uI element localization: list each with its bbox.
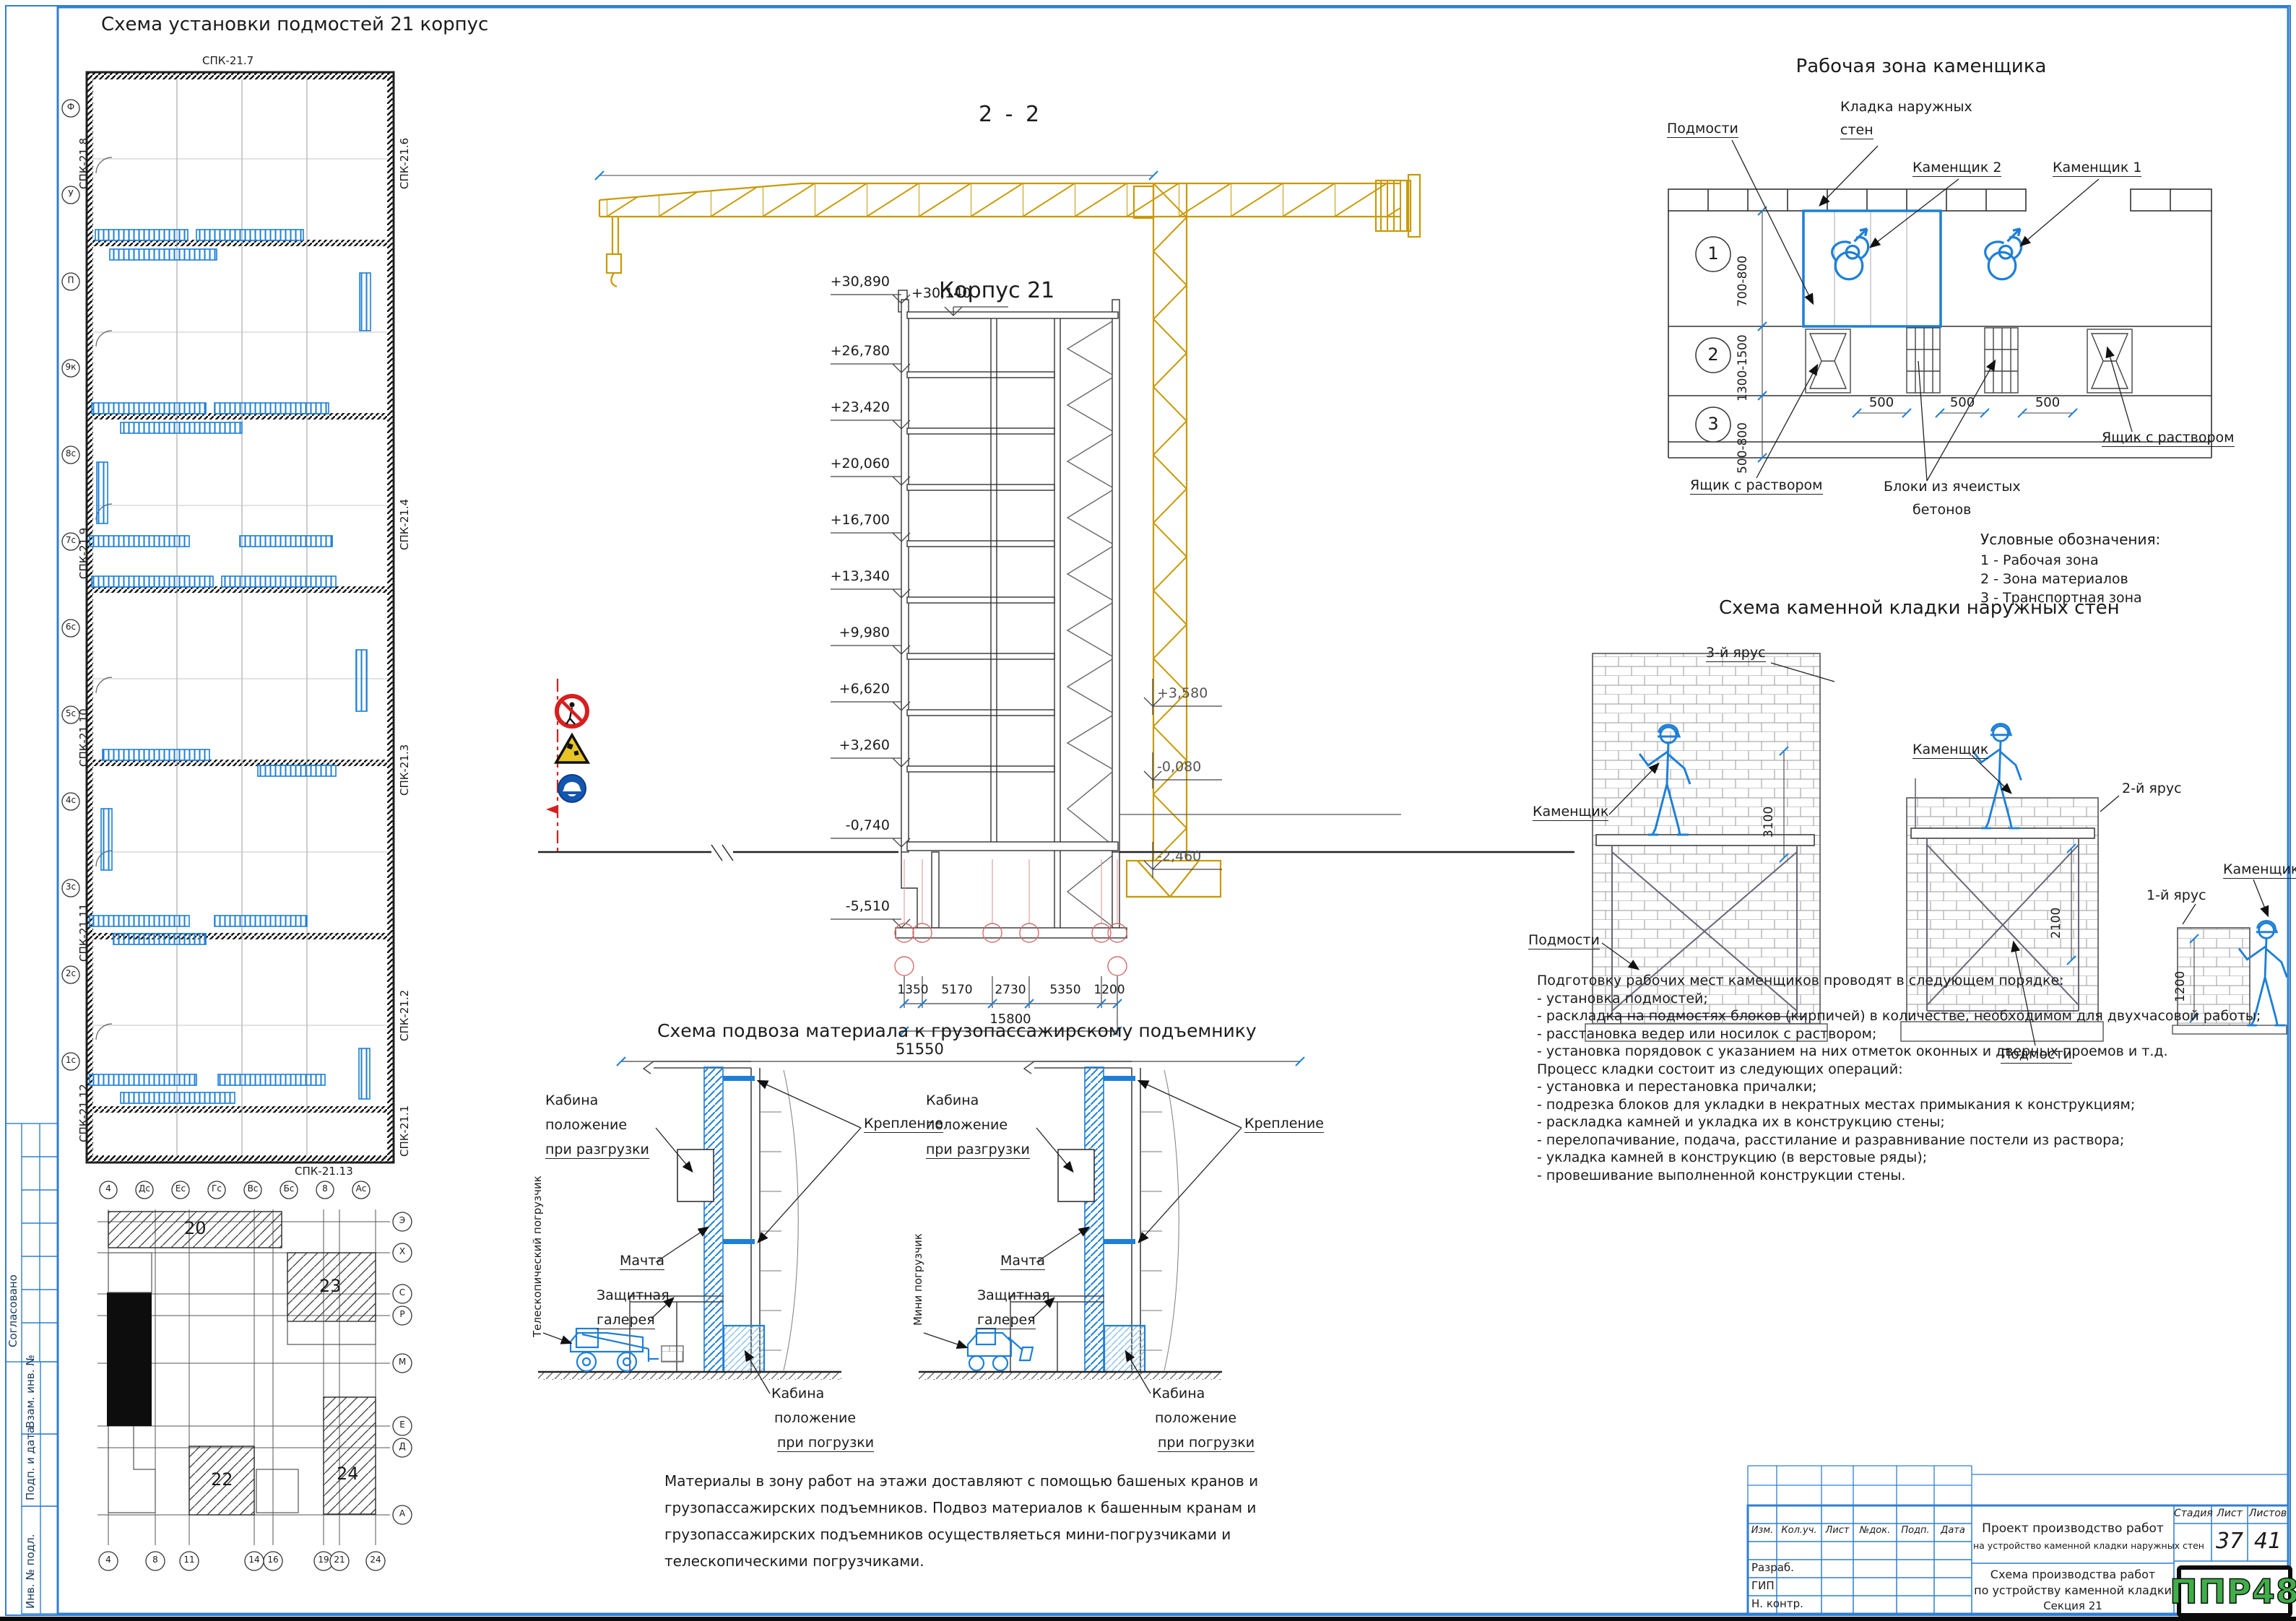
dimension: 500 — [2029, 396, 2066, 410]
elevation-label: +23,420 — [767, 400, 890, 415]
label-podmosti: Подмости — [1667, 121, 1738, 138]
legend-title: Условные обозначения: — [1980, 531, 2160, 547]
label-mortar-box: Ящик с раствором — [1690, 478, 1823, 495]
elevation-label: +3,260 — [767, 738, 890, 753]
axis-bubble: 8с — [62, 449, 79, 459]
axis-bubble: 4 — [100, 1184, 117, 1194]
key-plan-area: 23 — [319, 1277, 342, 1295]
hoist-title: Схема подвоза материала к грузопассажирс… — [657, 1021, 1148, 1041]
ground-lines — [538, 814, 1574, 861]
label-cab: при погрузки — [777, 1435, 874, 1452]
dimension: 5170 — [935, 983, 979, 997]
elevation-label: +6,620 — [767, 682, 890, 697]
axis-bubble: 9к — [62, 362, 79, 372]
dimension: 500 — [1863, 396, 1899, 410]
stamp-header: Дата — [1934, 1526, 1972, 1536]
label-cab: положение — [926, 1118, 1008, 1133]
floor-plan-label-left: СПК-21.10 — [78, 708, 90, 767]
label-loader: Мини погрузчик — [912, 1233, 924, 1326]
axis-bubble: Э — [394, 1216, 411, 1225]
key-plan-area: 20 — [184, 1219, 207, 1238]
axis-bubble: 7с — [62, 536, 79, 545]
label-cab: Кабина — [1152, 1386, 1205, 1401]
procedure-line: - раскладка на подмостях блоков (кирпиче… — [1537, 1009, 2261, 1024]
elevation-label: +13,340 — [767, 569, 890, 584]
stamp-stage-header: Листов — [2248, 1508, 2288, 1519]
label-blocks: Блоки из ячеистых — [1884, 479, 2021, 495]
elevation-label: +20,060 — [767, 456, 890, 471]
axis-bubble: 4с — [62, 796, 79, 805]
axis-bubble: 3с — [62, 882, 79, 892]
label-cab: при погрузки — [1158, 1435, 1255, 1452]
stamp-role: Разраб. — [1751, 1562, 1794, 1574]
axis-bubble: Ф — [62, 103, 79, 112]
stamp-role: ГИП — [1751, 1580, 1775, 1592]
tier-label: 3-й ярус — [1706, 646, 1766, 662]
skid-steer-icon — [968, 1329, 1033, 1370]
margin-label: Взам. инв. № — [25, 1355, 37, 1428]
stamp-role: Н. контр. — [1751, 1598, 1803, 1610]
elevation-label: +16,700 — [767, 513, 890, 528]
label-blocks: бетонов — [1912, 503, 1971, 518]
dimension: 500 — [1944, 396, 1980, 410]
label-mason: Каменщик — [1533, 804, 1608, 821]
dimension-total: 51550 — [896, 1041, 944, 1058]
margin-label: Согласовано — [7, 1274, 20, 1347]
floor-plan-label-right: СПК-21.6 — [399, 138, 411, 189]
floor-plan-label-left: СПК-21.11 — [78, 903, 90, 962]
label-podmosti: Подмости — [1528, 933, 1600, 949]
crane-elevation-label: -0,080 — [1157, 760, 1201, 775]
dimension: 2730 — [989, 983, 1032, 997]
axis-bubble: А — [394, 1509, 411, 1518]
zone-dim: 700-800 — [1736, 256, 1750, 307]
dimension: 1200 — [2174, 971, 2188, 1002]
label-machta: Мачта — [620, 1253, 664, 1270]
axis-bubble: Е — [394, 1420, 411, 1430]
elevation-label: -5,510 — [767, 899, 890, 914]
label-kladka: стен — [1840, 123, 1873, 139]
label-cab: Кабина — [771, 1386, 824, 1401]
zone-dim: 500-800 — [1736, 422, 1750, 474]
crane-elevation-label: +3,580 — [1157, 686, 1208, 701]
no-pedestrian-sign — [557, 696, 587, 726]
scaffold-strips — [90, 230, 371, 1103]
drawing-graphics — [0, 0, 2296, 1621]
stamp-sheet-number: 37 — [2211, 1529, 2248, 1553]
procedure-line: - установка подмостей; — [1537, 991, 1708, 1007]
stamp-doc-name: Схема производства работ — [1973, 1568, 2172, 1581]
label-cab: при разгрузки — [926, 1142, 1030, 1159]
procedure-line: - укладка камней в конструкцию (в версто… — [1537, 1150, 1927, 1165]
axis-bubble: 24 — [367, 1555, 384, 1565]
drawing-sheet: Схема установки подмостей 21 корпус СПК-… — [0, 0, 2296, 1621]
label-cab: положение — [1155, 1411, 1236, 1426]
label-gallery: галерея — [977, 1313, 1036, 1329]
elevation-label: -0,740 — [767, 818, 890, 833]
axis-bubble: Ес — [172, 1184, 189, 1194]
axis-bubble: 21 — [331, 1555, 348, 1565]
crane-elevation-label: -2,460 — [1157, 849, 1201, 864]
dimension: 1350 — [891, 983, 935, 997]
label-kreplenie: Крепление — [1244, 1116, 1324, 1133]
procedure-line: - провешивание выполненной конструкции с… — [1537, 1168, 1905, 1183]
stamp-sheets-total: 41 — [2248, 1529, 2288, 1553]
dimension: 1200 — [1088, 983, 1131, 997]
margin-label: Инв. № подл. — [25, 1534, 37, 1609]
procedure-line: - перелопачивание, подача, расстилание и… — [1537, 1133, 2124, 1148]
label-mason1: Каменщик 1 — [2053, 160, 2141, 177]
axis-bubble: Д — [394, 1442, 411, 1451]
dimension: 3100 — [1762, 807, 1776, 838]
section-cut-line — [595, 171, 1158, 180]
legend-item: 2 - Зона материалов — [1980, 572, 2128, 587]
dimension: 5350 — [1044, 983, 1087, 997]
axis-bubble: М — [394, 1357, 411, 1367]
floor-plan-axis-bubbles — [62, 100, 370, 1199]
label-cab: положение — [545, 1118, 627, 1133]
axis-bubble: Вс — [244, 1184, 261, 1194]
label-gallery: галерея — [597, 1313, 655, 1329]
stamp-doc-name: по устройству каменной кладки — [1973, 1584, 2172, 1597]
axis-bubble: 8 — [147, 1555, 164, 1565]
section-title: 2 - 2 — [979, 103, 1042, 126]
zone-number: 1 — [1696, 244, 1730, 263]
materials-note-line: Материалы в зону работ на этажи доставля… — [664, 1473, 1258, 1489]
procedure-line: Подготовку рабочих мест каменщиков прово… — [1537, 973, 2064, 988]
label-mason: Каменщик — [1912, 742, 1988, 759]
label-loader: Телескопический погрузчик — [532, 1175, 544, 1337]
floor-plan-label-right: СПК-21.1 — [399, 1105, 411, 1157]
materials-note-line: грузопассажирских подъемников. Подвоз ма… — [664, 1500, 1256, 1516]
stamp-header: Подп. — [1897, 1526, 1934, 1536]
procedure-line: - установка и перестановка причалки; — [1537, 1079, 1817, 1095]
procedure-line: - подрезка блоков для укладки в некратны… — [1537, 1098, 2135, 1113]
stamp-doc-name: Секция 21 — [1973, 1600, 2172, 1612]
axis-bubble: 19 — [315, 1555, 332, 1565]
margin-label: Подп. и дата — [25, 1427, 37, 1500]
stamp-header: Кол.уч. — [1777, 1526, 1821, 1536]
procedure-line: - установка порядовок с указанием на них… — [1537, 1044, 2168, 1059]
axis-bubble: Бс — [280, 1184, 298, 1194]
label-cab: положение — [774, 1411, 856, 1426]
stamp-header: Изм. — [1748, 1526, 1777, 1536]
floor-plan-label-right: СПК-21.4 — [399, 499, 411, 550]
tier-label: 2-й ярус — [2122, 781, 2182, 796]
floor-plan-label-right: СПК-21.3 — [399, 744, 411, 796]
label-mason: Каменщик — [2223, 862, 2296, 879]
building-section — [896, 290, 1127, 938]
key-plan — [98, 1209, 412, 1570]
floor-plan-label-left: СПК-21.9 — [78, 528, 90, 579]
floor-plan-label-top: СПК-21.7 — [202, 55, 254, 67]
procedure-line: - раскладка камней и укладка их в констр… — [1537, 1115, 1945, 1130]
zone-number: 3 — [1696, 414, 1730, 433]
tier-label: 1-й ярус — [2146, 888, 2206, 903]
stamp-stage-header: Стадия — [2174, 1508, 2211, 1519]
label-mortar-box: Ящик с раствором — [2102, 430, 2235, 447]
zone-number: 2 — [1696, 345, 1730, 364]
axis-bubble: 8 — [316, 1184, 334, 1194]
zone-dim: 1300-1500 — [1736, 334, 1750, 401]
label-cab: Кабина — [926, 1093, 979, 1108]
axis-bubble: 11 — [181, 1555, 198, 1565]
axis-bubble: 4 — [100, 1555, 117, 1565]
brick-pallet — [662, 1346, 683, 1362]
axis-bubble: У — [62, 189, 79, 199]
label-cab: Кабина — [545, 1093, 598, 1108]
stamp-stage-header: Лист — [2211, 1508, 2248, 1519]
falling-objects-sign — [556, 735, 588, 762]
axis-bubble: Дс — [136, 1184, 153, 1194]
danger-zone-boundary — [546, 679, 558, 852]
stamp-project-name: на устройство каменной кладки наружных с… — [1973, 1541, 2172, 1551]
telehandler-icon — [571, 1329, 659, 1371]
stamp-header: №док. — [1853, 1526, 1897, 1536]
stamp-project-name: Проект производство работ — [1973, 1522, 2172, 1536]
hoist-diagram-left — [538, 1061, 861, 1394]
hard-hat-sign — [558, 775, 586, 802]
elevation-label: +9,980 — [767, 625, 890, 640]
axis-bubble: Р — [394, 1310, 411, 1319]
axis-bubble: 14 — [246, 1555, 263, 1565]
label-cab: при разгрузки — [545, 1142, 649, 1159]
materials-note-line: грузопассажирских подъемников осуществля… — [664, 1526, 1231, 1542]
key-plan-area: 22 — [211, 1470, 233, 1489]
axis-bubble: 16 — [264, 1555, 282, 1565]
axis-bubble: Ас — [352, 1184, 370, 1194]
axis-bubble: П — [62, 276, 79, 285]
axis-bubble: Гс — [208, 1184, 225, 1194]
key-plan-area: 24 — [337, 1464, 359, 1483]
procedure-line: Процесс кладки состоит из следующих опер… — [1537, 1062, 1903, 1077]
label-kladka: Кладка наружных — [1840, 100, 1972, 115]
ppr48-logo: ППР48 — [2177, 1565, 2292, 1617]
floor-plan-label-left: СПК-21.8 — [78, 138, 90, 189]
dimension: 2100 — [2050, 908, 2063, 939]
label-gallery: Защитная — [597, 1288, 670, 1303]
axis-bubble: Х — [394, 1247, 411, 1256]
floor-plan-label-bottom: СПК-21.13 — [295, 1165, 353, 1178]
masonry-title: Схема каменной кладки наружных стен — [1719, 598, 2094, 619]
floor-plan — [62, 72, 394, 1199]
axis-bubble: 6с — [62, 622, 79, 632]
label-mason2: Каменщик 2 — [1912, 160, 2001, 177]
floor-plan-label-left: СПК-21.12 — [78, 1084, 90, 1142]
axis-bubble: 1с — [62, 1056, 79, 1065]
stamp-header: Лист — [1821, 1526, 1853, 1536]
procedure-line: - расстановка ведер или носилок с раство… — [1537, 1027, 1876, 1042]
axis-bubble: С — [394, 1288, 411, 1298]
label-machta: Мачта — [1000, 1253, 1045, 1270]
materials-note-line: телескопическими погрузчиками. — [664, 1553, 924, 1569]
axis-bubble: 5с — [62, 709, 79, 718]
legend-item: 1 - Рабочая зона — [1980, 553, 2099, 568]
elevation-label: +26,780 — [767, 344, 890, 359]
floor-plan-label-right: СПК-21.2 — [399, 990, 411, 1041]
elevation-label: +30,890 — [767, 274, 890, 290]
elevation-label: +30,140 — [911, 286, 971, 301]
hoist-diagram-right — [919, 1061, 1242, 1394]
label-gallery: Защитная — [977, 1288, 1050, 1303]
work-zone-title: Рабочая зона каменщика — [1777, 56, 2066, 77]
axis-bubble: 2с — [62, 969, 79, 978]
sheet-title: Схема установки подмостей 21 корпус — [101, 14, 488, 35]
